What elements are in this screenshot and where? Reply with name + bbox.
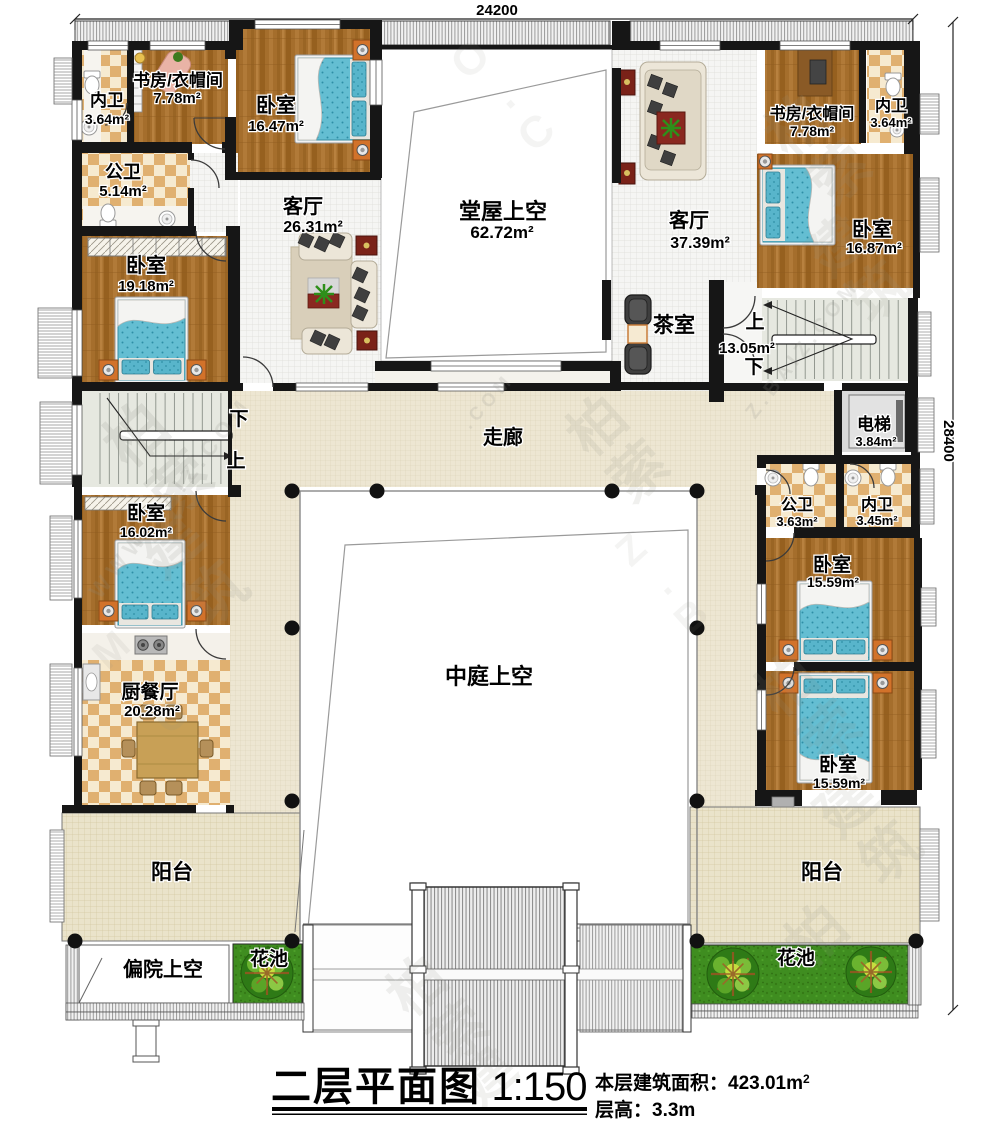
svg-text:3.45m²: 3.45m² <box>856 513 898 528</box>
svg-text:卧室: 卧室 <box>819 753 857 776</box>
svg-text:走廊: 走廊 <box>483 425 523 449</box>
svg-text:卧室: 卧室 <box>852 217 892 241</box>
svg-text:客厅: 客厅 <box>668 208 709 232</box>
svg-text:1:150: 1:150 <box>491 1065 586 1109</box>
svg-text:7.78m²: 7.78m² <box>153 90 201 107</box>
svg-text:卧室: 卧室 <box>127 501 165 524</box>
svg-text:内卫: 内卫 <box>861 495 893 514</box>
svg-text:上: 上 <box>745 311 764 333</box>
svg-text:公卫: 公卫 <box>105 162 141 182</box>
svg-text:7.78m²: 7.78m² <box>790 123 835 139</box>
svg-text:客厅: 客厅 <box>282 194 323 218</box>
svg-text:13.05m²: 13.05m² <box>719 340 775 357</box>
svg-text:卧室: 卧室 <box>126 253 166 277</box>
svg-text:15.59m²: 15.59m² <box>813 775 865 791</box>
svg-text:卧室: 卧室 <box>813 553 851 576</box>
svg-text:3.84m²: 3.84m² <box>855 434 897 449</box>
svg-text:24200: 24200 <box>476 2 518 19</box>
svg-text:公卫: 公卫 <box>781 496 813 514</box>
svg-text:阳台: 阳台 <box>801 860 843 884</box>
svg-text:下: 下 <box>229 409 248 430</box>
svg-text:28400: 28400 <box>940 420 957 462</box>
svg-text:花池: 花池 <box>777 946 815 969</box>
svg-text:本层建筑面积：423.01m2: 本层建筑面积：423.01m2 <box>595 1071 810 1094</box>
svg-text:26.31m²: 26.31m² <box>283 219 343 236</box>
svg-text:层高：3.3m: 层高：3.3m <box>595 1098 695 1121</box>
svg-text:厨餐厅: 厨餐厅 <box>121 680 178 703</box>
svg-text:二层平面图: 二层平面图 <box>271 1065 481 1109</box>
svg-text:3.63m²: 3.63m² <box>776 514 818 529</box>
svg-text:内卫: 内卫 <box>875 96 907 115</box>
svg-text:下: 下 <box>744 357 763 378</box>
svg-text:16.02m²: 16.02m² <box>120 524 172 540</box>
svg-text:茶室: 茶室 <box>653 313 695 337</box>
svg-text:花池: 花池 <box>250 947 288 970</box>
svg-text:卧室: 卧室 <box>256 93 296 117</box>
svg-text:3.64m²: 3.64m² <box>85 111 130 127</box>
svg-text:16.47m²: 16.47m² <box>248 118 304 135</box>
svg-text:中庭上空: 中庭上空 <box>445 664 533 689</box>
svg-text:偏院上空: 偏院上空 <box>123 957 203 981</box>
svg-text:电梯: 电梯 <box>857 414 891 434</box>
svg-text:堂屋上空: 堂屋上空 <box>459 199 547 224</box>
svg-text:阳台: 阳台 <box>151 860 193 884</box>
svg-text:5.14m²: 5.14m² <box>99 183 147 200</box>
svg-text:19.18m²: 19.18m² <box>118 278 174 295</box>
svg-text:上: 上 <box>226 450 245 472</box>
svg-text:书房/衣帽间: 书房/衣帽间 <box>770 104 854 123</box>
svg-text:16.87m²: 16.87m² <box>846 240 902 257</box>
svg-text:15.59m²: 15.59m² <box>807 574 859 590</box>
svg-text:内卫: 内卫 <box>90 90 124 110</box>
svg-text:20.28m²: 20.28m² <box>124 703 180 720</box>
svg-text:62.72m²: 62.72m² <box>470 223 534 242</box>
svg-text:书房/衣帽间: 书房/衣帽间 <box>133 70 223 90</box>
svg-text:37.39m²: 37.39m² <box>670 235 730 252</box>
svg-text:3.64m²: 3.64m² <box>870 115 912 130</box>
